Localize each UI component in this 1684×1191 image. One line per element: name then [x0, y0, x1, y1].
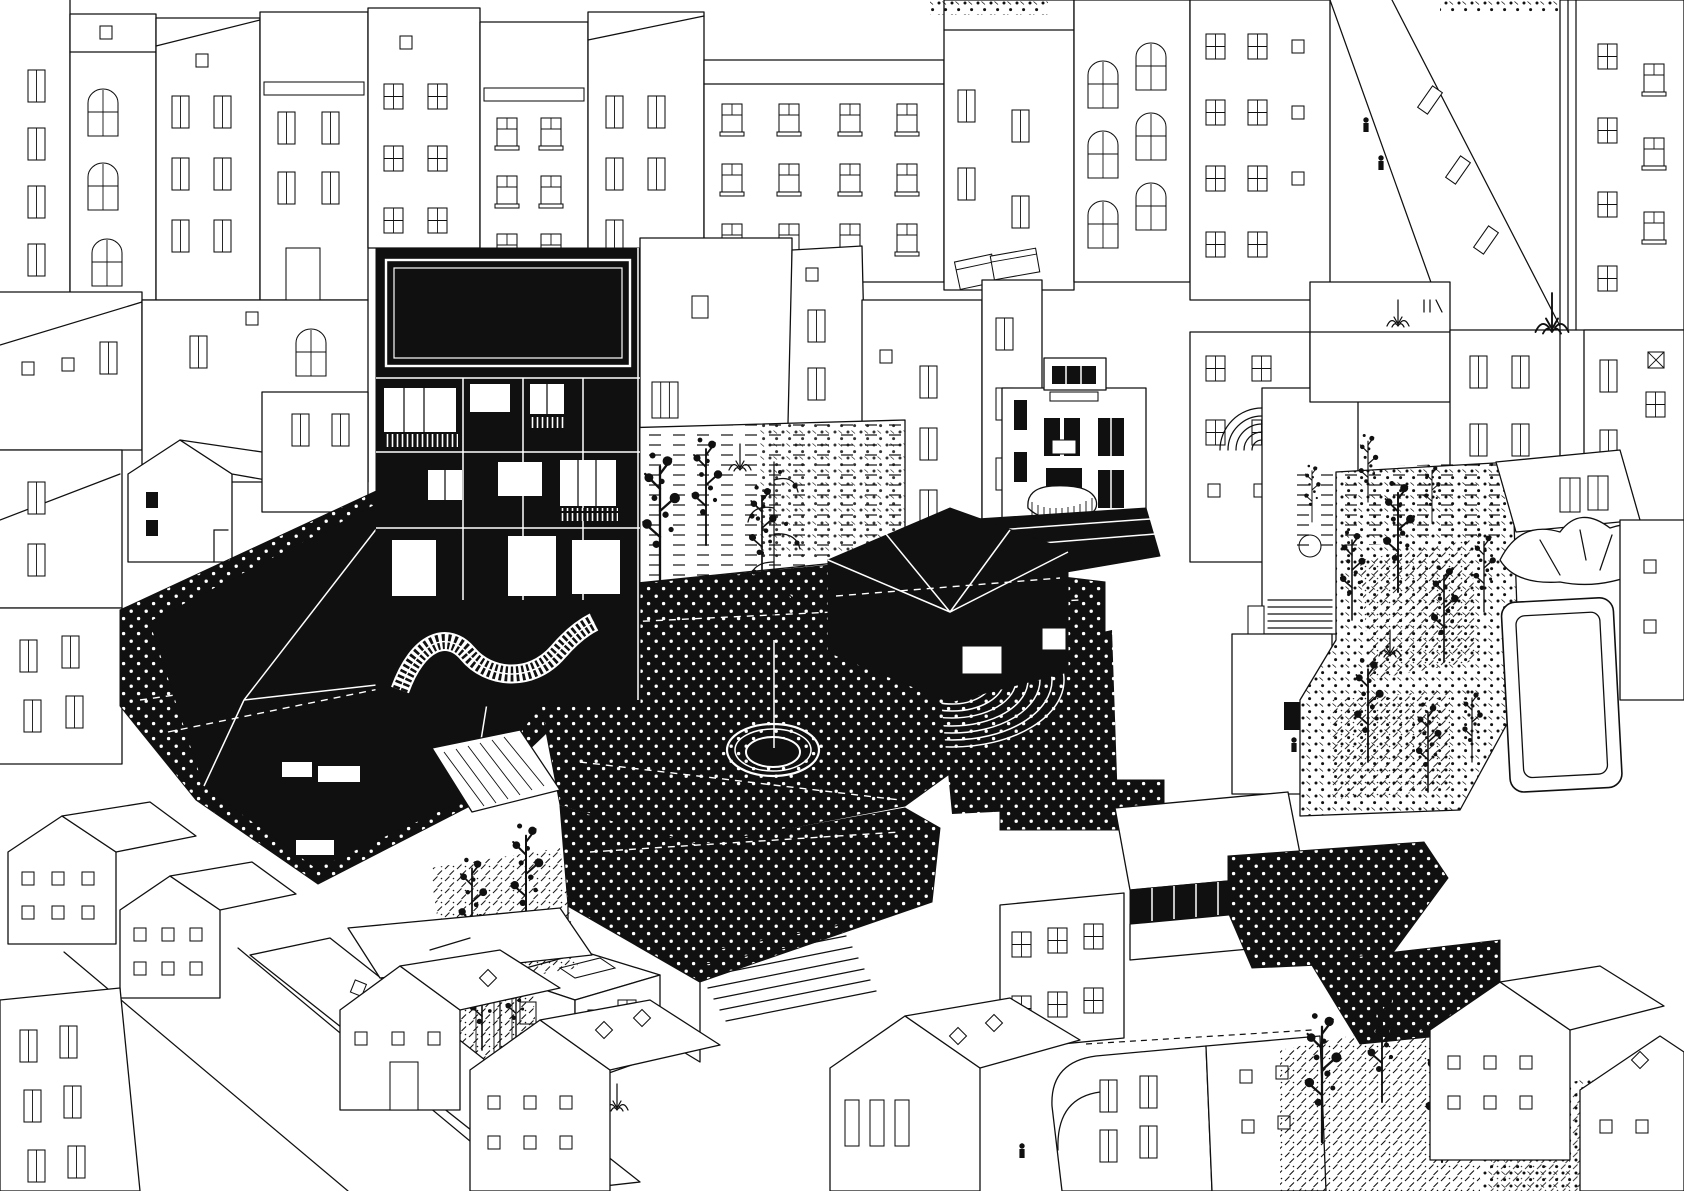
- axonometric-city-drawing: Black and white axonometric architectura…: [0, 0, 1684, 1191]
- dotted-roof-patch: [930, 0, 1048, 15]
- pedestrian: [1019, 1143, 1024, 1158]
- dotted-roof-patch: [1440, 0, 1558, 13]
- rooftop-pool: [1501, 597, 1623, 793]
- billboard-building: [376, 248, 640, 706]
- illustration-page: Black and white axonometric architectura…: [0, 0, 1684, 1191]
- courtyard-figure: [1291, 737, 1296, 752]
